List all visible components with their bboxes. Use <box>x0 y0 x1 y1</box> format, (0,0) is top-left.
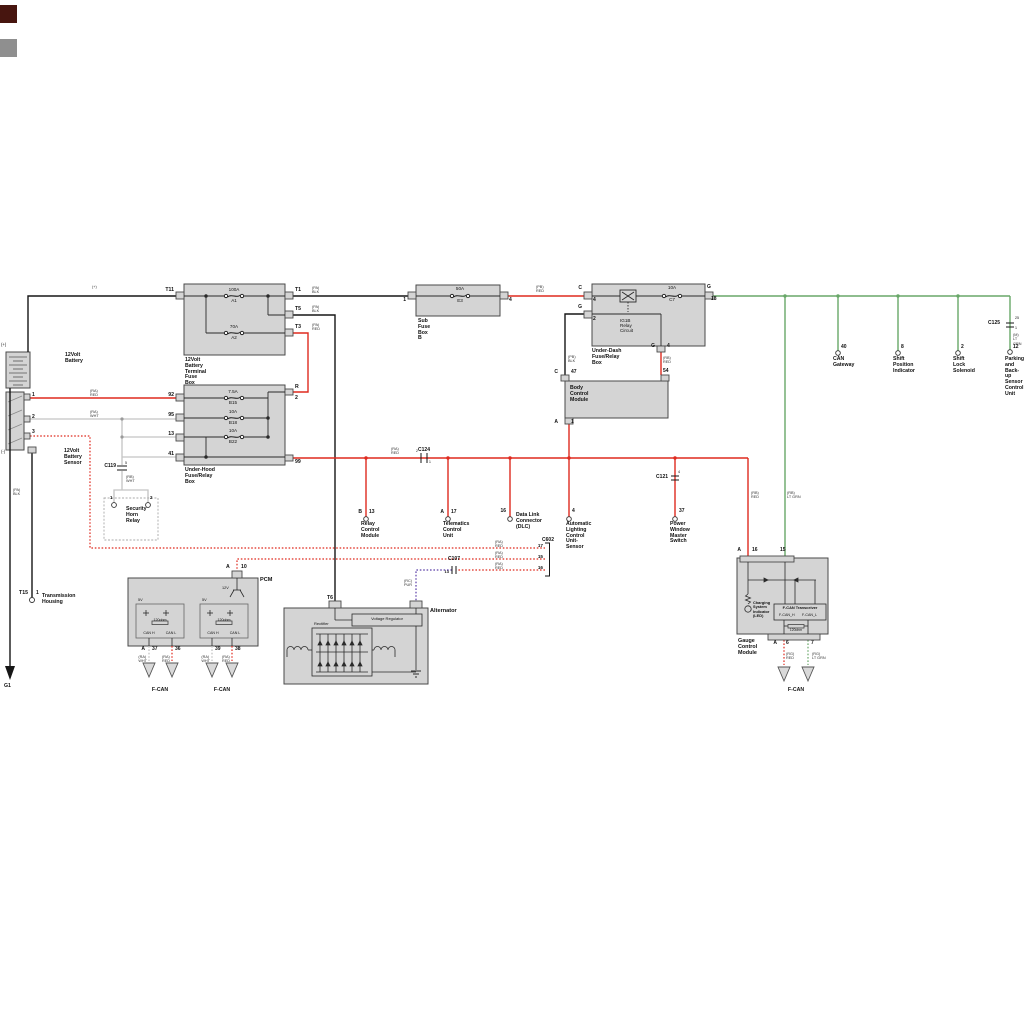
relay-ctrl-pin-b: B <box>358 510 362 516</box>
wire-code-pb-red: (PB) RED <box>536 285 544 294</box>
gauge-control-module-box <box>737 558 828 634</box>
fuse-b22-amp: 10A <box>229 428 237 433</box>
fuse-b15-amp: 7.5A <box>228 389 237 394</box>
terminal-t3: T3 <box>295 325 301 331</box>
wire-code-37: (RA) WHT <box>138 655 147 664</box>
fuse-a1-id: A1 <box>231 298 237 303</box>
pcm-120ohm-2: 120ohm <box>218 618 231 622</box>
underdash-pin-c: C <box>578 286 582 292</box>
wire-code-rg-ltgrn: (RG) LT GRN <box>812 652 826 661</box>
sensor-pin-3: 3 <box>32 430 35 436</box>
wire-code-c602-16: (RA) RED <box>495 562 503 571</box>
pcm-pin-a2: A <box>141 647 145 653</box>
t15-terminal <box>30 598 35 603</box>
bcm-pin-c: C <box>554 370 558 376</box>
wiring-schematic <box>0 0 1024 1024</box>
fuse-e3-amp: 50A <box>456 286 464 291</box>
shift-pos-name: Shift Position Ind​icator <box>893 357 915 374</box>
fcan-terminators <box>143 663 814 681</box>
pin-92: 92 <box>168 393 174 399</box>
transmission-housing-name: Transmission Housing <box>42 594 75 606</box>
battery-name: 12Volt Battery <box>65 353 83 365</box>
ig1b-relay-label: IG1B Relay Circuit <box>620 318 633 333</box>
underdash-pin-g2-g: G <box>578 305 582 311</box>
pin-circles <box>30 350 1013 603</box>
bcm-pin-54: 54 <box>663 369 669 375</box>
pcm-box <box>128 578 258 646</box>
pcm-pin-39: 39 <box>215 647 221 653</box>
bcm-name: Body Control Module <box>570 386 588 403</box>
connector-c119: C119 <box>104 464 116 470</box>
connector-c121: C121 <box>656 475 668 481</box>
horn-relay-pin-2: 2 <box>150 496 152 501</box>
wire-code-t1: (PA) BLK <box>312 286 319 295</box>
wire-code-39: (RA) WHT <box>201 655 210 664</box>
underdash-pin-18: 18 <box>711 297 717 303</box>
fuse-a2-id: A2 <box>231 335 237 340</box>
under-hood-box-name: Under-Hood Fuse/Relay Box <box>185 468 215 485</box>
pin-r-2: 2 <box>295 396 298 402</box>
terminal-t5: T5 <box>295 307 301 313</box>
gauge-bottom-pin-6: 6 <box>786 641 789 647</box>
pcm-pin-a: A <box>226 565 230 571</box>
wire-code-rb-red-g: (RB) RED <box>751 491 759 500</box>
pcm-5v-2: 5V <box>202 598 207 602</box>
underdash-pin-2: 2 <box>593 317 596 323</box>
fcan-transceiver-name: F-CAN Transceiver <box>783 606 818 610</box>
gauge-fcan-label: F-CAN <box>788 688 804 694</box>
sensor-pin-1: 1 <box>32 393 35 399</box>
pin-13: 13 <box>168 432 174 438</box>
wire-code-rb-ltgrn: (RB) LT GRN <box>787 491 801 500</box>
connector-c602: C602 <box>542 538 554 544</box>
pcm-can-h-1: CAN H <box>143 631 154 635</box>
connector-c107-glyph <box>452 566 456 574</box>
c124-pin-1: 1 <box>429 461 431 465</box>
under-dash-fuse-relay-box <box>592 284 705 346</box>
gauge-pin-16: 16 <box>752 548 758 554</box>
pwms-pin-37: 37 <box>679 509 685 515</box>
wire-code-pur: (RC) PUR <box>404 579 412 588</box>
security-horn-relay-name: Security Horn Relay <box>126 507 146 524</box>
connector-c124: C124 <box>418 448 430 454</box>
terminal-t11: T11 <box>165 288 174 294</box>
battery-negative-label: (-) <box>1 450 5 455</box>
cable-code-top: (+) <box>92 285 97 289</box>
pcm-5v-1: 5V <box>138 598 143 602</box>
c602-pin-15: 15 <box>538 554 543 559</box>
gauge-control-module-name: Gauge Control Module <box>738 638 757 656</box>
gauge-bottom-pin-7: 7 <box>811 641 814 647</box>
pcm-can-l-1: CAN L <box>166 631 177 635</box>
telematics-pin-17: 17 <box>451 510 457 516</box>
gauge-bottom-pin-a: A <box>773 641 777 647</box>
wire-code-c602-17: (RA) RED <box>495 540 503 549</box>
diagram-canvas: (+)(+)T1112Volt Battery100AA170AA212Volt… <box>0 0 1024 1024</box>
battery-positive-label: (+) <box>1 343 6 348</box>
battery-sensor-name: 12Volt Battery Sensor <box>64 449 82 466</box>
wire-code-m-ltgrn: (M) LT GRN <box>1013 333 1024 346</box>
wire-code-c602-15: (RA) RED <box>495 551 503 560</box>
connector-c121-pin: 4 <box>678 470 680 474</box>
pcm-120ohm-1: 120ohm <box>154 618 167 622</box>
battery-terminal-fuse-box-name: 12Volt Battery Terminal Fuse Box <box>185 358 206 387</box>
fuse-a1-amp: 100A <box>229 287 240 292</box>
white-wires <box>30 419 176 503</box>
wire-code-rb-red: (RB) RED <box>663 356 671 365</box>
pwms-name: Power Window Master Switch <box>670 522 690 545</box>
shift-lock-name: Shift Lock Solenoid <box>953 357 975 374</box>
telematics-pin-a: A <box>440 510 444 516</box>
gauge-pin-a: A <box>737 548 741 554</box>
battery-terminal-fuse-box <box>184 284 285 355</box>
pcm-pin-36: 36 <box>175 647 181 653</box>
fcan-label-1: F-CAN <box>152 688 168 694</box>
underdash-pin-4b: 4 <box>667 344 670 350</box>
bcm-pin-a: A <box>554 420 558 426</box>
fuse-b22-id: B22 <box>229 439 237 444</box>
horn-relay-pin-1: 1 <box>110 496 112 501</box>
pcm-can-h-2: CAN H <box>207 631 218 635</box>
wire-code-g1: (PA) BLK <box>13 488 20 497</box>
underdash-pin-g18-g: G <box>707 285 711 291</box>
fuse-e3-id: E3 <box>457 298 463 303</box>
shift-lock-pin: 2 <box>961 345 964 351</box>
sub-fuse-pin-1: 1 <box>403 298 406 304</box>
pcm-12v: 12V <box>222 586 229 590</box>
telematics-name: Telematics Control Unit <box>443 522 469 539</box>
connector-c119-pin: 5 <box>125 461 127 465</box>
terminal-t1: T1 <box>295 288 301 294</box>
green-wires <box>713 296 1010 556</box>
connector-c602-glyph <box>545 543 550 576</box>
relay-ctrl-pin-13: 13 <box>369 510 375 516</box>
pin-r: R <box>295 385 299 391</box>
parking-backup-name: Parking and Back-up Sensor Control Unit <box>1005 357 1024 398</box>
rectifier-name: Rectifier <box>314 622 329 626</box>
fcan-l-label: F-CAN_L <box>802 613 817 617</box>
sensor-pin-2: 2 <box>32 415 35 421</box>
pin-41: 41 <box>168 452 174 458</box>
auto-lighting-name: Automatic Lighting Control Unit- Sensor <box>566 522 591 551</box>
fuse-c7-id: C7 <box>669 297 675 302</box>
relay-control-module-name: Relay Control Module <box>361 522 379 539</box>
c124-pin-2: 2 <box>416 450 418 454</box>
can-gateway-pin: 40 <box>841 345 847 351</box>
c125-pin-25: 25 <box>1015 316 1019 320</box>
under-dash-box-name: Under-Dash Fuse/Relay Box <box>592 349 621 366</box>
alternator-name: Alternator <box>430 608 457 614</box>
pcm-pin-10: 10 <box>241 565 247 571</box>
gauge-pin-15: 15 <box>780 548 786 554</box>
wire-code-horn: (RB) WHT <box>126 475 135 484</box>
pcm-can-l-2: CAN L <box>230 631 241 635</box>
dotted-purple-wire <box>416 570 452 601</box>
fuse-a2-amp: 70A <box>230 324 238 329</box>
dlc-pin-16: 16 <box>500 509 506 515</box>
bcm-pin-47: 47 <box>571 370 577 376</box>
wire-code-t5: (PA) BLK <box>312 305 319 314</box>
fuse-c7-amp: 10A <box>668 285 676 290</box>
can-gateway-name: CAN Gateway <box>833 357 854 369</box>
sub-fuse-pin-4: 4 <box>509 298 512 304</box>
parking-backup-pin: 12 <box>1013 345 1019 351</box>
alternator-box <box>284 608 428 684</box>
terminal-t6: T6 <box>327 596 333 602</box>
wire-code-pb-blk: (PB) BLK <box>568 355 576 364</box>
voltage-regulator-name: Voltage Regulator <box>371 617 403 621</box>
wire-code-92: (RA) RED <box>90 389 98 398</box>
connector-c125: C125 <box>988 321 1000 327</box>
underdash-pin-g4-g: G <box>651 344 655 350</box>
connector-c119-glyph <box>117 466 127 470</box>
ground-g1-arrow <box>5 666 15 680</box>
component-boxes <box>6 284 828 684</box>
sub-fuse-box-name: Sub Fuse Box B <box>418 319 430 342</box>
bcm-pin-1: 1 <box>571 420 574 426</box>
c125-pin-1: 1 <box>1015 326 1017 330</box>
charging-indicator-name: Charging System Indicator (LED) <box>753 601 770 619</box>
wire-code-rg-red: (RG) RED <box>786 652 794 661</box>
connector-c107: C107 <box>448 557 460 563</box>
dlc-name: Data Link Connector (DLC) <box>516 513 542 530</box>
connector-c107-pin: 13 <box>445 570 449 574</box>
fcan-h-label: F-CAN_H <box>779 613 795 617</box>
terminal-t15: T15 <box>19 591 28 597</box>
c602-pin-16: 16 <box>538 565 543 570</box>
shift-pos-pin: 8 <box>901 345 904 351</box>
wire-code-38: (RA) RED <box>222 655 230 664</box>
c602-pin-17: 17 <box>538 543 543 548</box>
pin-99: 99 <box>295 460 301 466</box>
underdash-pin-4: 4 <box>593 298 596 304</box>
wire-code-95: (RA) WHT <box>90 410 99 419</box>
ground-g1: G1 <box>4 684 11 690</box>
pcm-pin-37: 37 <box>152 647 158 653</box>
pin-95: 95 <box>168 413 174 419</box>
pcm-name: PCM <box>260 577 272 583</box>
fuse-b18-amp: 10A <box>229 409 237 414</box>
gauge-120ohm: 120ohm <box>790 629 802 633</box>
terminal-t15-pin: 1 <box>36 591 39 597</box>
fuse-b18-id: B18 <box>229 420 237 425</box>
fcan-label-2: F-CAN <box>214 688 230 694</box>
pcm-pin-38: 38 <box>235 647 241 653</box>
fuse-b15-id: B15 <box>229 400 237 405</box>
wire-code-36: (RA) RED <box>162 655 170 664</box>
wire-code-bus: (RA) RED <box>391 447 399 456</box>
auto-lighting-pin-4: 4 <box>572 509 575 515</box>
wire-code-t3: (PA) RED <box>312 323 320 332</box>
